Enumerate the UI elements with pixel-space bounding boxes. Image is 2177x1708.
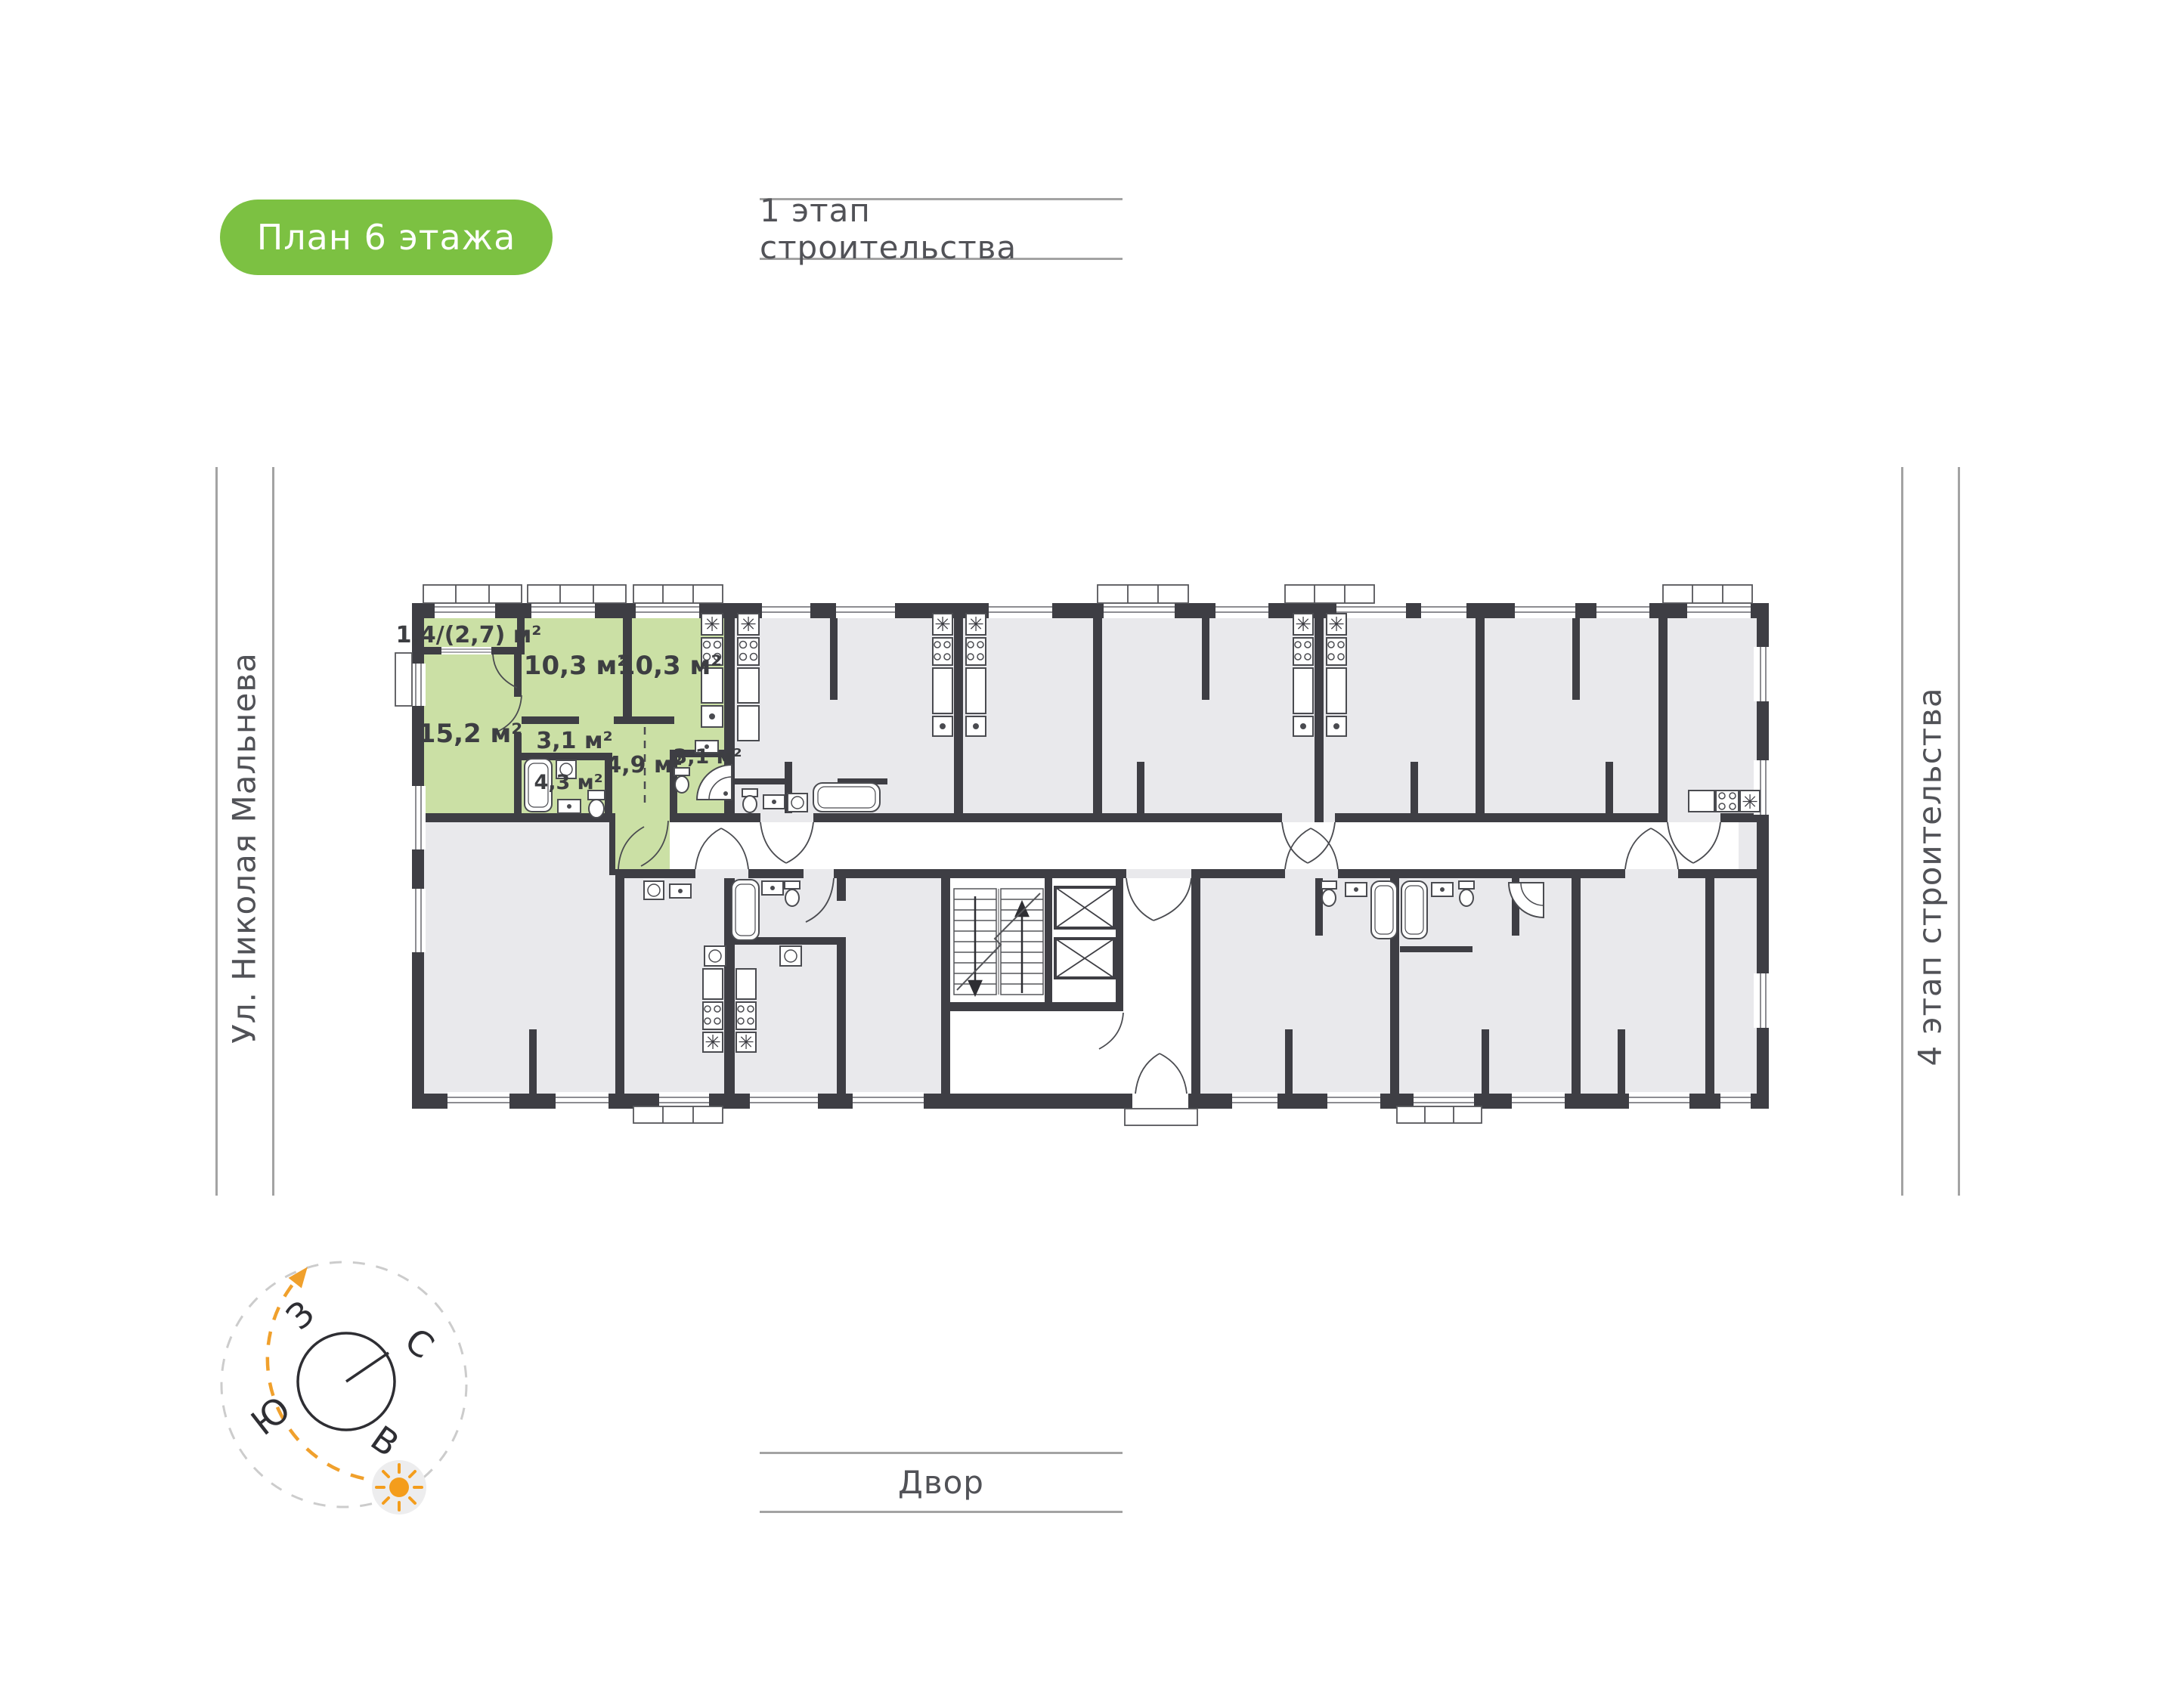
compass-west: З	[278, 1292, 322, 1338]
compass-south: Ю	[243, 1388, 298, 1443]
room-label-bathroom: 3,1 м²	[673, 745, 742, 769]
svg-text:✳: ✳	[1328, 614, 1345, 636]
svg-text:✳: ✳	[738, 1032, 754, 1054]
toilet-icon	[785, 890, 799, 906]
svg-text:✳: ✳	[740, 614, 757, 636]
room-label-kitchen: 10,3 м²	[618, 651, 722, 681]
room-label-hallway: 3,1 м²	[536, 728, 612, 754]
toilet-icon	[1322, 890, 1336, 906]
svg-text:✳: ✳	[1742, 791, 1758, 814]
toilet-icon	[675, 776, 689, 793]
svg-text:✳: ✳	[704, 614, 720, 636]
toilet-icon	[1460, 890, 1473, 906]
room-label-balcony: 1,4/(2,7) м²	[396, 622, 542, 648]
stairs	[954, 889, 1043, 995]
room-label-bathroom2: 4,3 м²	[534, 771, 602, 794]
svg-text:✳: ✳	[968, 614, 984, 636]
toilet-icon	[743, 796, 757, 812]
sun-icon	[372, 1460, 426, 1515]
compass: З С Ю В	[221, 1262, 466, 1515]
svg-text:✳: ✳	[1295, 614, 1311, 636]
floor-plan-svg: ✳✳ ✳✳ ✳✳ ✳ ✳✳	[0, 0, 2177, 1708]
room-label-living: 15,2 м²	[418, 719, 522, 749]
page: План 6 этажа 1 этап строительства Ул. Ни…	[0, 0, 2177, 1708]
svg-text:✳: ✳	[934, 614, 951, 636]
room-label-bedroom: 10,3 м²	[524, 651, 628, 681]
svg-text:✳: ✳	[705, 1032, 721, 1054]
room-label-corridor: 4,9 м²	[605, 752, 682, 778]
compass-north: С	[398, 1320, 442, 1366]
